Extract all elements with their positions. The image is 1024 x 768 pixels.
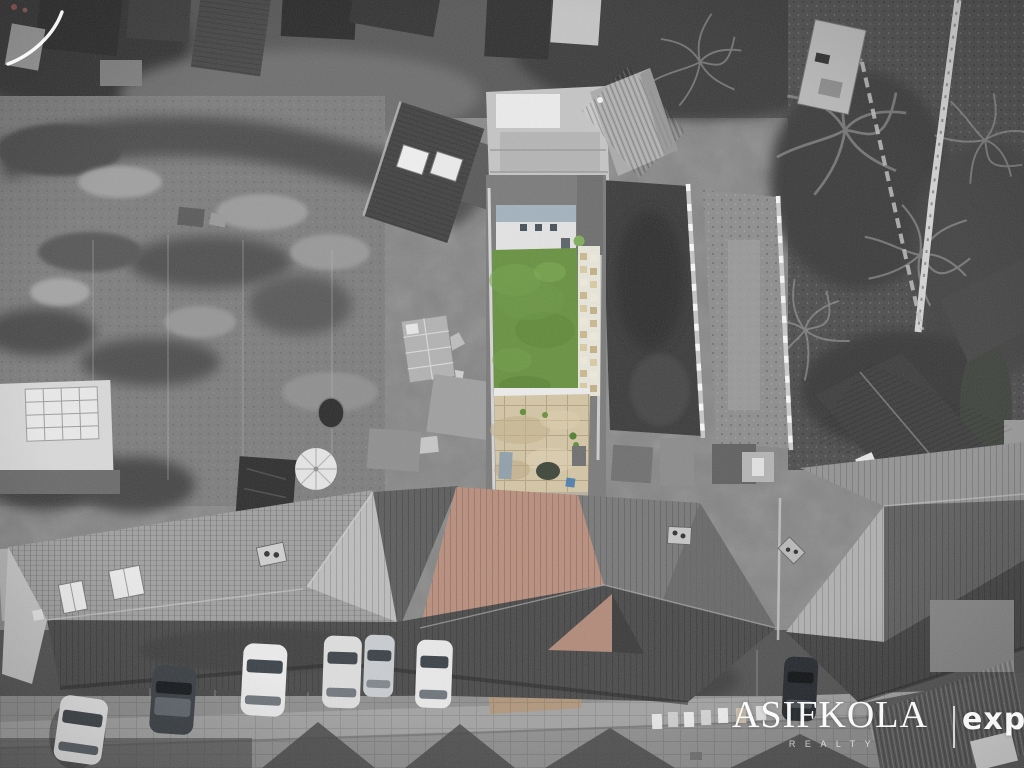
watermark-divider [953, 706, 955, 748]
film-grain [0, 0, 1024, 768]
aerial-photo: ASIFKOLA REALTY exp [0, 0, 1024, 768]
photo-canvas [0, 0, 1024, 768]
exp-logo-swash [0, 0, 72, 72]
exp-logo: exp [962, 702, 1024, 737]
